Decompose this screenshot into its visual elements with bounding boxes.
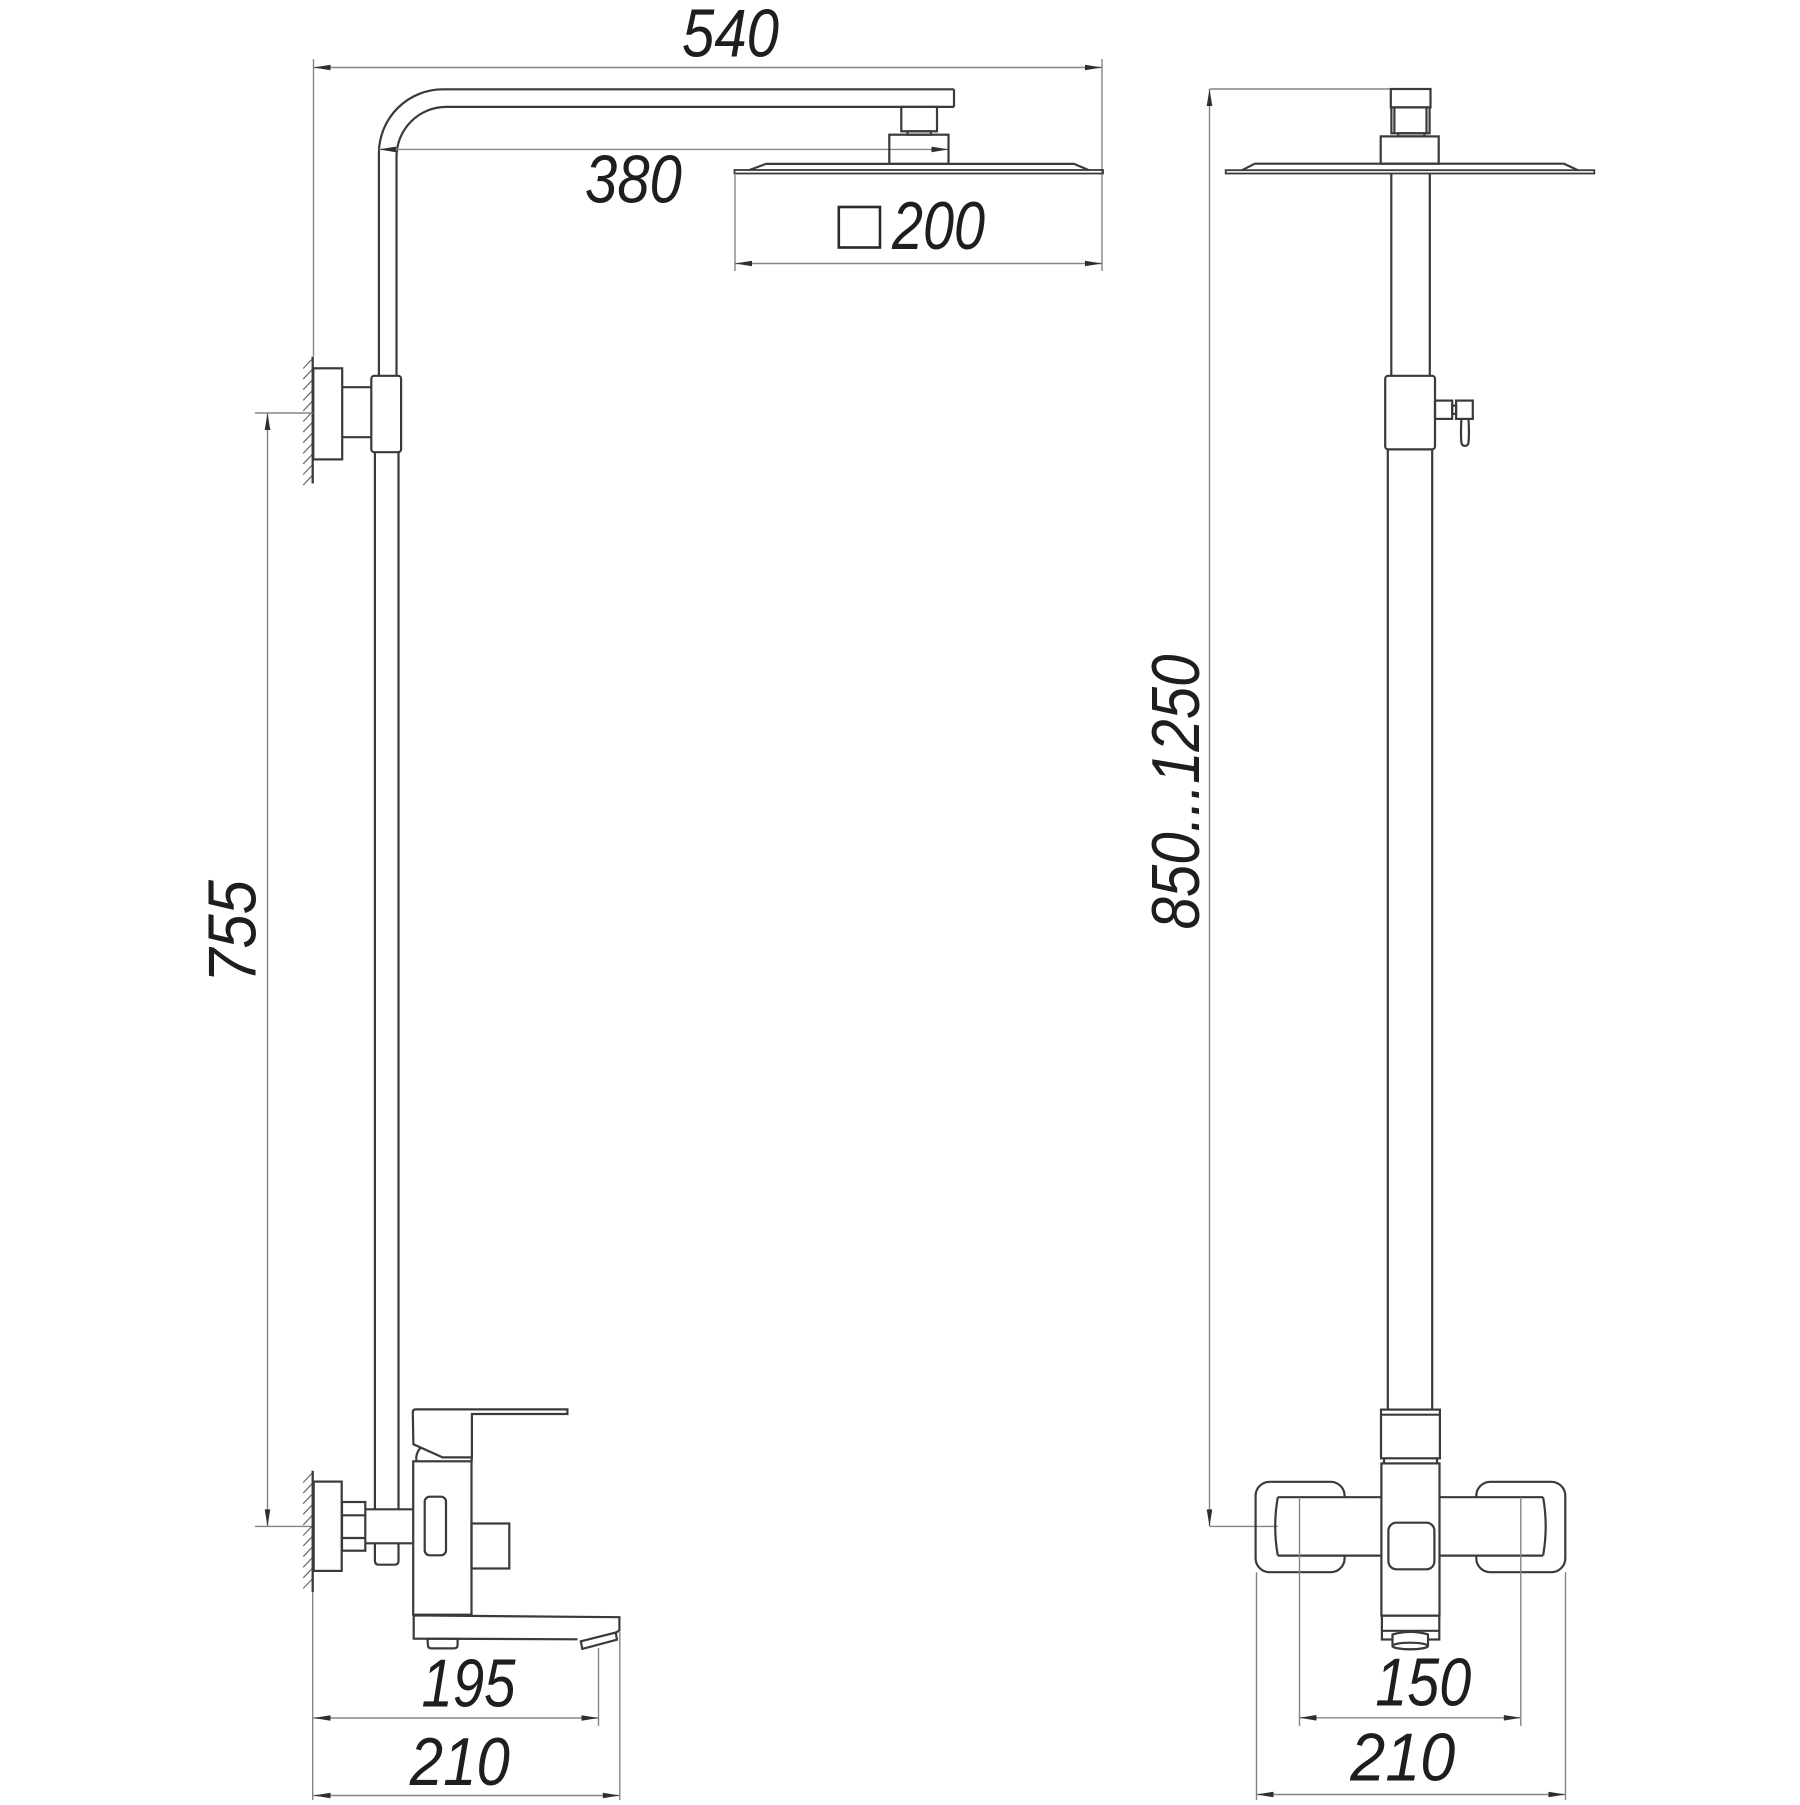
svg-text:200: 200 bbox=[891, 188, 985, 264]
svg-text:755: 755 bbox=[195, 880, 271, 983]
svg-text:380: 380 bbox=[585, 142, 682, 218]
svg-text:150: 150 bbox=[1375, 1645, 1471, 1721]
svg-text:210: 210 bbox=[409, 1724, 510, 1800]
svg-text:540: 540 bbox=[682, 0, 779, 72]
svg-text:210: 210 bbox=[1349, 1720, 1455, 1796]
svg-text:195: 195 bbox=[422, 1646, 516, 1722]
svg-text:850...1250: 850...1250 bbox=[1138, 654, 1214, 929]
